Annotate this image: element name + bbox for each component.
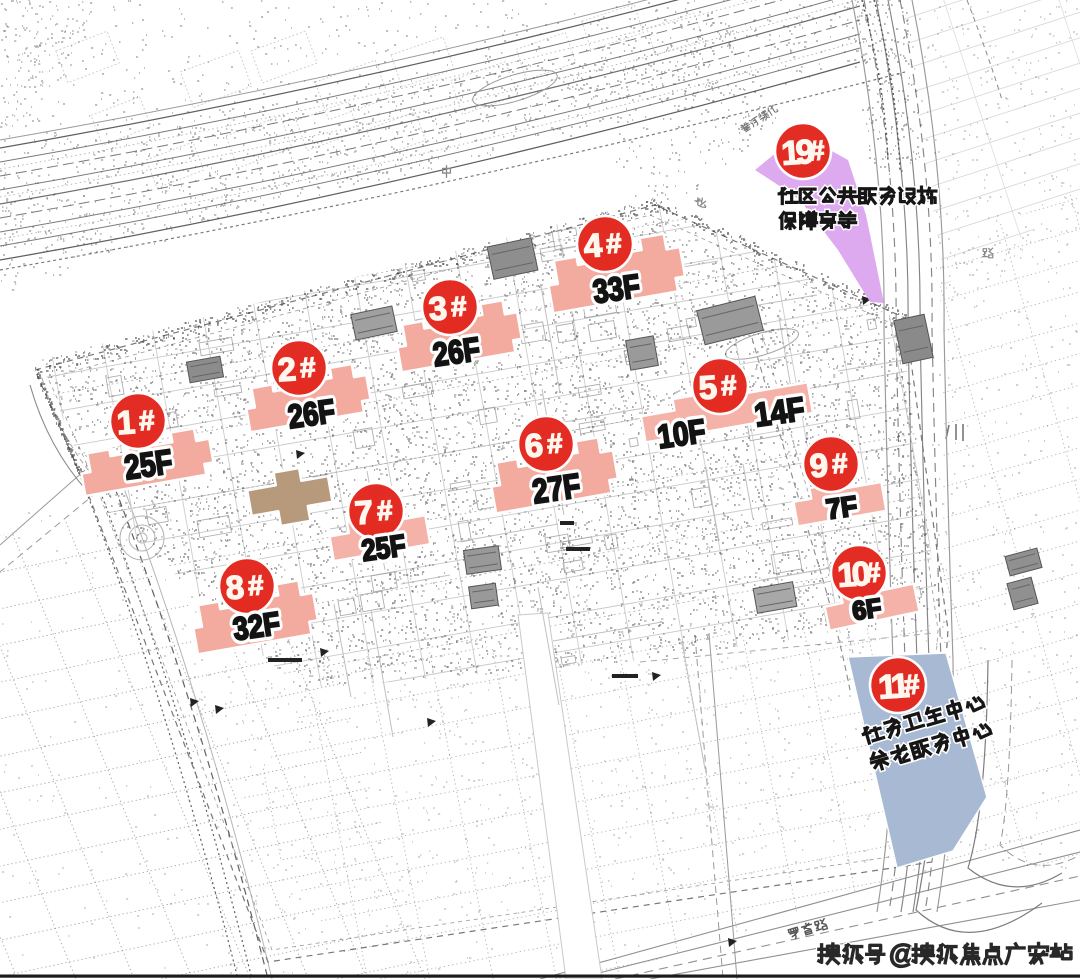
svg-text:25F: 25F: [122, 443, 175, 487]
svg-text:4: 4: [582, 226, 604, 264]
svg-text:27F: 27F: [530, 467, 583, 511]
svg-text:#: #: [864, 557, 882, 589]
svg-text:#: #: [299, 351, 317, 383]
svg-text:25F: 25F: [360, 529, 408, 568]
svg-text:#: #: [376, 494, 394, 526]
svg-text:7F: 7F: [824, 490, 859, 525]
svg-text:33F: 33F: [591, 267, 643, 310]
svg-text:#: #: [903, 669, 921, 701]
svg-text:5: 5: [697, 368, 718, 406]
svg-text:7: 7: [353, 493, 374, 531]
svg-text:1: 1: [115, 403, 136, 441]
svg-text:#: #: [831, 447, 849, 479]
svg-text:26F: 26F: [431, 330, 483, 373]
svg-text:#: #: [138, 404, 156, 436]
svg-text:#: #: [808, 135, 826, 167]
svg-text:6: 6: [523, 426, 544, 464]
svg-text:10F: 10F: [655, 412, 708, 455]
svg-text:#: #: [450, 290, 468, 322]
svg-text:6F: 6F: [850, 592, 883, 626]
svg-text:#: #: [546, 427, 564, 459]
svg-text:32F: 32F: [231, 605, 283, 647]
svg-text:14F: 14F: [752, 390, 807, 434]
svg-text:#: #: [720, 369, 738, 401]
svg-text:8: 8: [224, 568, 245, 606]
svg-text:9: 9: [808, 446, 829, 484]
svg-text:3: 3: [427, 289, 448, 327]
svg-text:26F: 26F: [286, 392, 338, 435]
svg-text:#: #: [605, 227, 623, 259]
svg-text:#: #: [247, 569, 265, 601]
svg-text:2: 2: [276, 350, 297, 388]
